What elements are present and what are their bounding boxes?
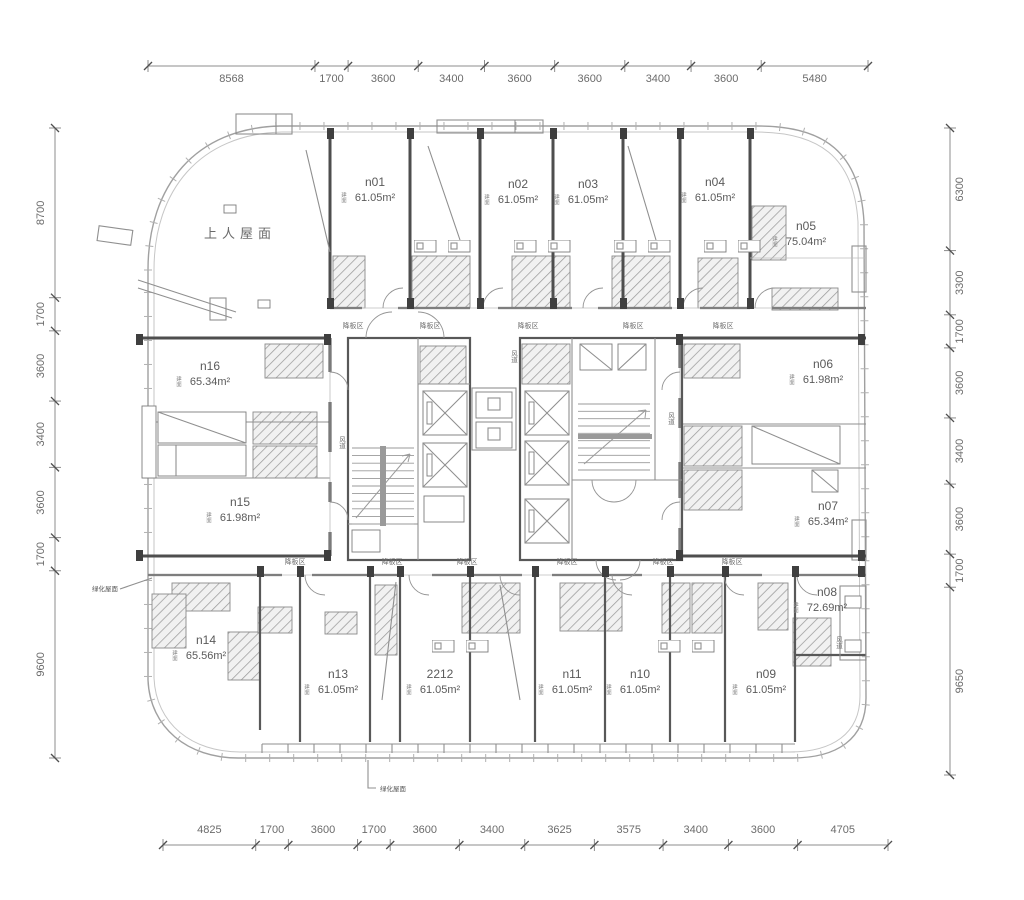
dimension-value: 5480 <box>802 73 826 85</box>
svg-text:75.04m²: 75.04m² <box>786 236 827 248</box>
unit-label-n16: n1665.34m²建面 <box>175 359 231 388</box>
svg-text:n11: n11 <box>562 667 581 681</box>
svg-text:n15: n15 <box>230 495 250 509</box>
dimension-value: 3625 <box>547 824 571 836</box>
dimension-value: 6300 <box>954 177 966 201</box>
svg-text:n04: n04 <box>705 175 725 189</box>
air-duct-label: 风道 <box>835 636 843 651</box>
sunken-zone-label: 降板区 <box>722 557 743 566</box>
air-duct-label: 风道 <box>510 350 518 365</box>
dimension-value: 1700 <box>954 319 966 343</box>
unit-label-n03: n0361.05m²建面 <box>553 177 609 206</box>
svg-text:建面: 建面 <box>788 373 795 387</box>
dimension-value: 3600 <box>35 490 47 514</box>
svg-text:建面: 建面 <box>483 193 490 207</box>
washer-icon <box>692 640 714 652</box>
svg-text:61.05m²: 61.05m² <box>498 194 539 206</box>
svg-text:61.05m²: 61.05m² <box>420 684 461 696</box>
dimension-value: 3600 <box>577 73 601 85</box>
svg-text:n07: n07 <box>818 499 838 513</box>
unit-label-n15: n1561.98m²建面 <box>205 495 261 524</box>
washer-icon <box>614 240 636 252</box>
svg-text:n14: n14 <box>196 633 216 647</box>
dimension-strip-left: 8700170036003400360017009600 <box>35 124 61 762</box>
note-bottom-text: 绿化屋面 <box>380 784 407 793</box>
roof-area: 上人屋面 <box>138 205 276 320</box>
dimension-value: 3300 <box>954 270 966 294</box>
svg-text:n08: n08 <box>817 585 837 599</box>
unit-label-n01: n0161.05m²建面 <box>340 175 396 204</box>
dimension-value: 3400 <box>684 824 708 836</box>
sunken-zone-label: 降板区 <box>343 321 364 330</box>
washer-icon <box>738 240 760 252</box>
washer-icon <box>448 240 470 252</box>
sunken-zone-label: 降板区 <box>518 321 539 330</box>
bed-icon <box>142 406 246 478</box>
dimension-value: 3600 <box>507 73 531 85</box>
dimension-value: 1700 <box>319 73 343 85</box>
dimension-value: 9600 <box>35 652 47 676</box>
dimension-value: 1700 <box>954 558 966 582</box>
dimension-strip-top: 856817003600340036003600340036005480 <box>144 60 872 85</box>
svg-text:n13: n13 <box>328 667 348 681</box>
bed-icon <box>752 426 840 492</box>
unit-label-n04: n0461.05m²建面 <box>680 175 736 204</box>
unit-label-n10: n1061.05m²建面 <box>605 667 661 696</box>
floor-plan-svg: 856817003600340036003600340036005480 482… <box>0 0 1024 900</box>
unit-label-n11: n1161.05m²建面 <box>537 667 593 696</box>
dimension-value: 1700 <box>362 824 386 836</box>
washer-icon <box>704 240 726 252</box>
sunken-zone-label: 降板区 <box>382 557 403 566</box>
washer-icon <box>514 240 536 252</box>
svg-text:建面: 建面 <box>605 683 612 697</box>
washer-icon <box>466 640 488 652</box>
sunken-zone-label: 降板区 <box>623 321 644 330</box>
dimension-value: 1700 <box>260 824 284 836</box>
svg-text:61.05m²: 61.05m² <box>695 192 736 204</box>
dimension-value: 3400 <box>646 73 670 85</box>
roof-label: 上人屋面 <box>204 226 276 241</box>
sunken-zone-label: 降板区 <box>457 557 478 566</box>
svg-text:61.98m²: 61.98m² <box>803 374 844 386</box>
dimension-value: 3400 <box>35 422 47 446</box>
svg-text:61.05m²: 61.05m² <box>620 684 661 696</box>
sunken-zone-label: 降板区 <box>285 557 306 566</box>
svg-text:建面: 建面 <box>731 683 738 697</box>
balcony-n08 <box>840 586 866 660</box>
leader-note-left: 绿化屋面 <box>92 578 152 593</box>
dimension-value: 8568 <box>219 73 243 85</box>
dimension-value: 3400 <box>439 73 463 85</box>
sunken-zone-label: 降板区 <box>420 321 441 330</box>
svg-text:61.98m²: 61.98m² <box>220 512 261 524</box>
svg-text:n01: n01 <box>365 175 385 189</box>
washer-icon <box>548 240 570 252</box>
svg-text:建面: 建面 <box>680 191 687 205</box>
dimension-value: 9650 <box>954 669 966 693</box>
unit-label-n02: n0261.05m²建面 <box>483 177 539 206</box>
svg-text:建面: 建面 <box>792 601 799 615</box>
dimension-value: 3600 <box>954 507 966 531</box>
dimension-value: 3600 <box>751 824 775 836</box>
unit-label-n08: n0872.69m²建面 <box>792 585 848 614</box>
svg-text:65.56m²: 65.56m² <box>186 650 227 662</box>
sunken-zone-label: 降板区 <box>557 557 578 566</box>
svg-text:n06: n06 <box>813 357 833 371</box>
dimension-value: 1700 <box>35 542 47 566</box>
dimension-value: 3600 <box>35 354 47 378</box>
svg-text:建面: 建面 <box>793 515 800 529</box>
floor-plan-drawing: 856817003600340036003600340036005480 482… <box>0 0 1024 900</box>
svg-text:65.34m²: 65.34m² <box>808 516 849 528</box>
unit-label-n07: n0765.34m²建面 <box>793 499 849 528</box>
svg-text:n09: n09 <box>756 667 776 681</box>
elevator-icon <box>525 441 569 485</box>
svg-text:n10: n10 <box>630 667 650 681</box>
unit-label-2212: 221261.05m²建面 <box>405 667 461 696</box>
svg-text:建面: 建面 <box>175 375 182 389</box>
svg-text:61.05m²: 61.05m² <box>318 684 359 696</box>
svg-text:61.05m²: 61.05m² <box>552 684 593 696</box>
washer-icon <box>432 640 454 652</box>
dimension-value: 3400 <box>480 824 504 836</box>
unit-label-n13: n1361.05m²建面 <box>303 667 359 696</box>
svg-text:n16: n16 <box>200 359 220 373</box>
dimension-value: 3600 <box>413 824 437 836</box>
sunken-zone-label: 降板区 <box>713 321 734 330</box>
svg-text:建面: 建面 <box>303 683 310 697</box>
svg-text:61.05m²: 61.05m² <box>746 684 787 696</box>
washer-icon <box>658 640 680 652</box>
stairs-icon <box>578 404 652 470</box>
svg-text:61.05m²: 61.05m² <box>355 192 396 204</box>
leader-note-bottom: 绿化屋面 <box>368 760 407 793</box>
svg-text:72.69m²: 72.69m² <box>807 602 848 614</box>
air-duct-label: 风道 <box>338 436 346 451</box>
dimension-value: 8700 <box>35 201 47 225</box>
dimension-value: 4825 <box>197 824 221 836</box>
dimension-value: 3400 <box>954 439 966 463</box>
dimension-value: 3600 <box>311 824 335 836</box>
dimension-value: 3600 <box>371 73 395 85</box>
svg-text:n05: n05 <box>796 219 816 233</box>
core-corridor <box>472 388 516 450</box>
dimension-value: 1700 <box>35 302 47 326</box>
elevator-icon <box>423 443 467 487</box>
stairs-icon <box>352 446 414 526</box>
svg-text:n03: n03 <box>578 177 598 191</box>
washer-icon <box>648 240 670 252</box>
sunken-zone-label: 降板区 <box>653 557 674 566</box>
dimension-strip-right: 63003300170036003400360017009650 <box>944 124 966 779</box>
svg-text:建面: 建面 <box>205 511 212 524</box>
svg-text:建面: 建面 <box>405 683 412 697</box>
washer-icon <box>414 240 436 252</box>
svg-text:n02: n02 <box>508 177 528 191</box>
note-left-text: 绿化屋面 <box>92 584 119 593</box>
svg-text:65.34m²: 65.34m² <box>190 376 231 388</box>
dimension-value: 3600 <box>714 73 738 85</box>
elevator-icon <box>525 391 569 435</box>
air-duct-label: 风道 <box>667 412 675 427</box>
svg-text:建面: 建面 <box>171 649 178 663</box>
unit-label-n06: n0661.98m²建面 <box>788 357 844 386</box>
svg-text:建面: 建面 <box>537 683 544 697</box>
balcony-rail-posts <box>262 744 782 753</box>
dimension-value: 3600 <box>954 371 966 395</box>
unit-label-n09: n0961.05m²建面 <box>731 667 787 696</box>
svg-text:建面: 建面 <box>771 235 778 249</box>
svg-text:建面: 建面 <box>340 191 347 205</box>
dimension-value: 4705 <box>831 824 855 836</box>
svg-text:61.05m²: 61.05m² <box>568 194 609 206</box>
elevator-icon <box>423 391 467 435</box>
elevator-icon <box>525 499 569 543</box>
dimension-value: 3575 <box>616 824 640 836</box>
svg-text:2212: 2212 <box>427 667 454 681</box>
svg-text:建面: 建面 <box>553 193 560 207</box>
dimension-strip-bottom: 4825170036001700360034003625357534003600… <box>159 824 892 851</box>
